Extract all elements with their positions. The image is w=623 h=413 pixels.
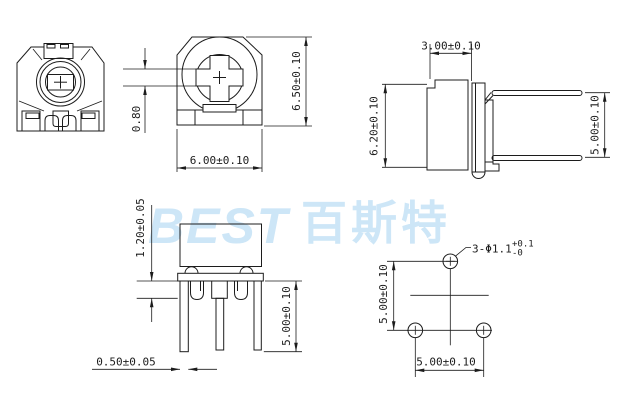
footprint-view: 5.00±0.10 5.00±0.10 3-Φ1.1 +0.1 -0 [377,240,534,378]
dim-body-height: 6.20±0.10 [368,84,428,167]
dim-footprint-horizontal-pitch: 5.00±0.10 [415,338,483,377]
dim-top-view-height-label: 6.50±0.10 [290,51,303,111]
dim-side-pin-pitch-label: 5.00±0.10 [589,95,602,155]
dim-slot-width-label: 0.80 [130,106,143,133]
dim-pin-length: 5.00±0.10 [264,281,302,352]
dim-pin-width-label: 0.50±0.05 [96,356,156,369]
front-view [17,44,104,132]
watermark-cjk-text: 百斯特 [301,196,451,250]
hole-callout-tol-minus: -0 [512,249,523,259]
drawing-canvas: BEST 百斯特 [0,0,623,413]
hole-callout: 3-Φ1.1 +0.1 -0 [456,240,534,259]
side-view: 3.00±0.10 6.20±0.10 5.00±0.10 [368,40,611,179]
dim-slot-width: 0.80 [130,48,147,133]
dim-side-pin-pitch: 5.00±0.10 [585,93,610,158]
dim-pin-length-label: 5.00±0.10 [280,286,293,346]
dim-body-width-label: 3.00±0.10 [421,40,481,53]
dim-footprint-vertical-pitch-label: 5.00±0.10 [377,264,390,324]
dim-pin-width: 0.50±0.05 [92,356,217,372]
dim-body-width: 3.00±0.10 [421,40,481,82]
dim-top-view-width-label: 6.00±0.10 [190,154,250,167]
dim-body-height-label: 6.20±0.10 [368,96,381,156]
hole-callout-label: 3-Φ1.1 [472,243,512,256]
engineering-drawing: BEST 百斯特 [0,0,623,413]
dim-standoff-label: 1.20±0.05 [134,198,147,258]
watermark-latin-text: BEST [148,198,292,254]
dim-footprint-vertical-pitch: 5.00±0.10 [377,261,396,330]
dim-top-view-width: 6.00±0.10 [177,129,262,172]
watermark: BEST 百斯特 [148,196,451,254]
top-view: 0.80 6.50±0.10 6.00±0.10 [123,37,312,172]
dim-footprint-horizontal-pitch-label: 5.00±0.10 [416,356,476,369]
